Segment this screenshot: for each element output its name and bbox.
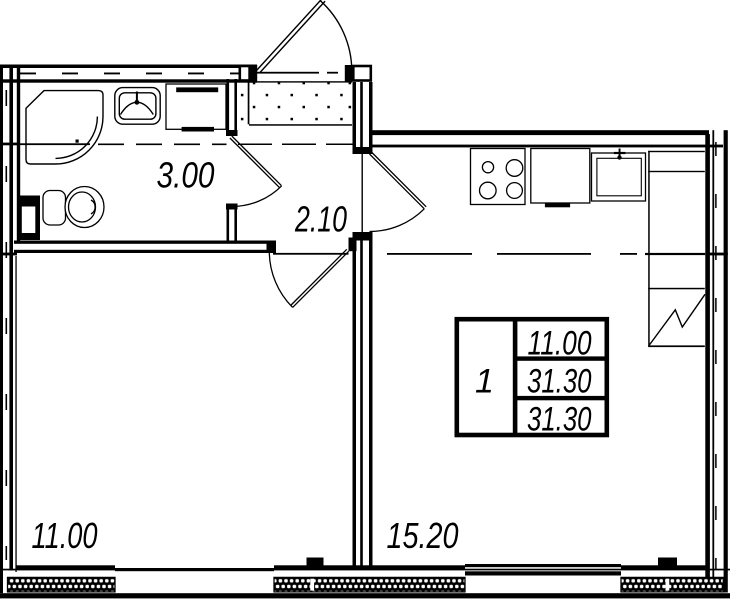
svg-text:1: 1 [475, 362, 494, 400]
svg-text:11.00: 11.00 [32, 515, 98, 556]
svg-text:31.30: 31.30 [527, 362, 592, 400]
svg-text:15.20: 15.20 [387, 515, 459, 556]
svg-text:3.00: 3.00 [157, 155, 215, 196]
svg-text:11.00: 11.00 [528, 324, 592, 362]
svg-text:2.10: 2.10 [294, 199, 347, 240]
svg-text:31.30: 31.30 [527, 401, 592, 439]
